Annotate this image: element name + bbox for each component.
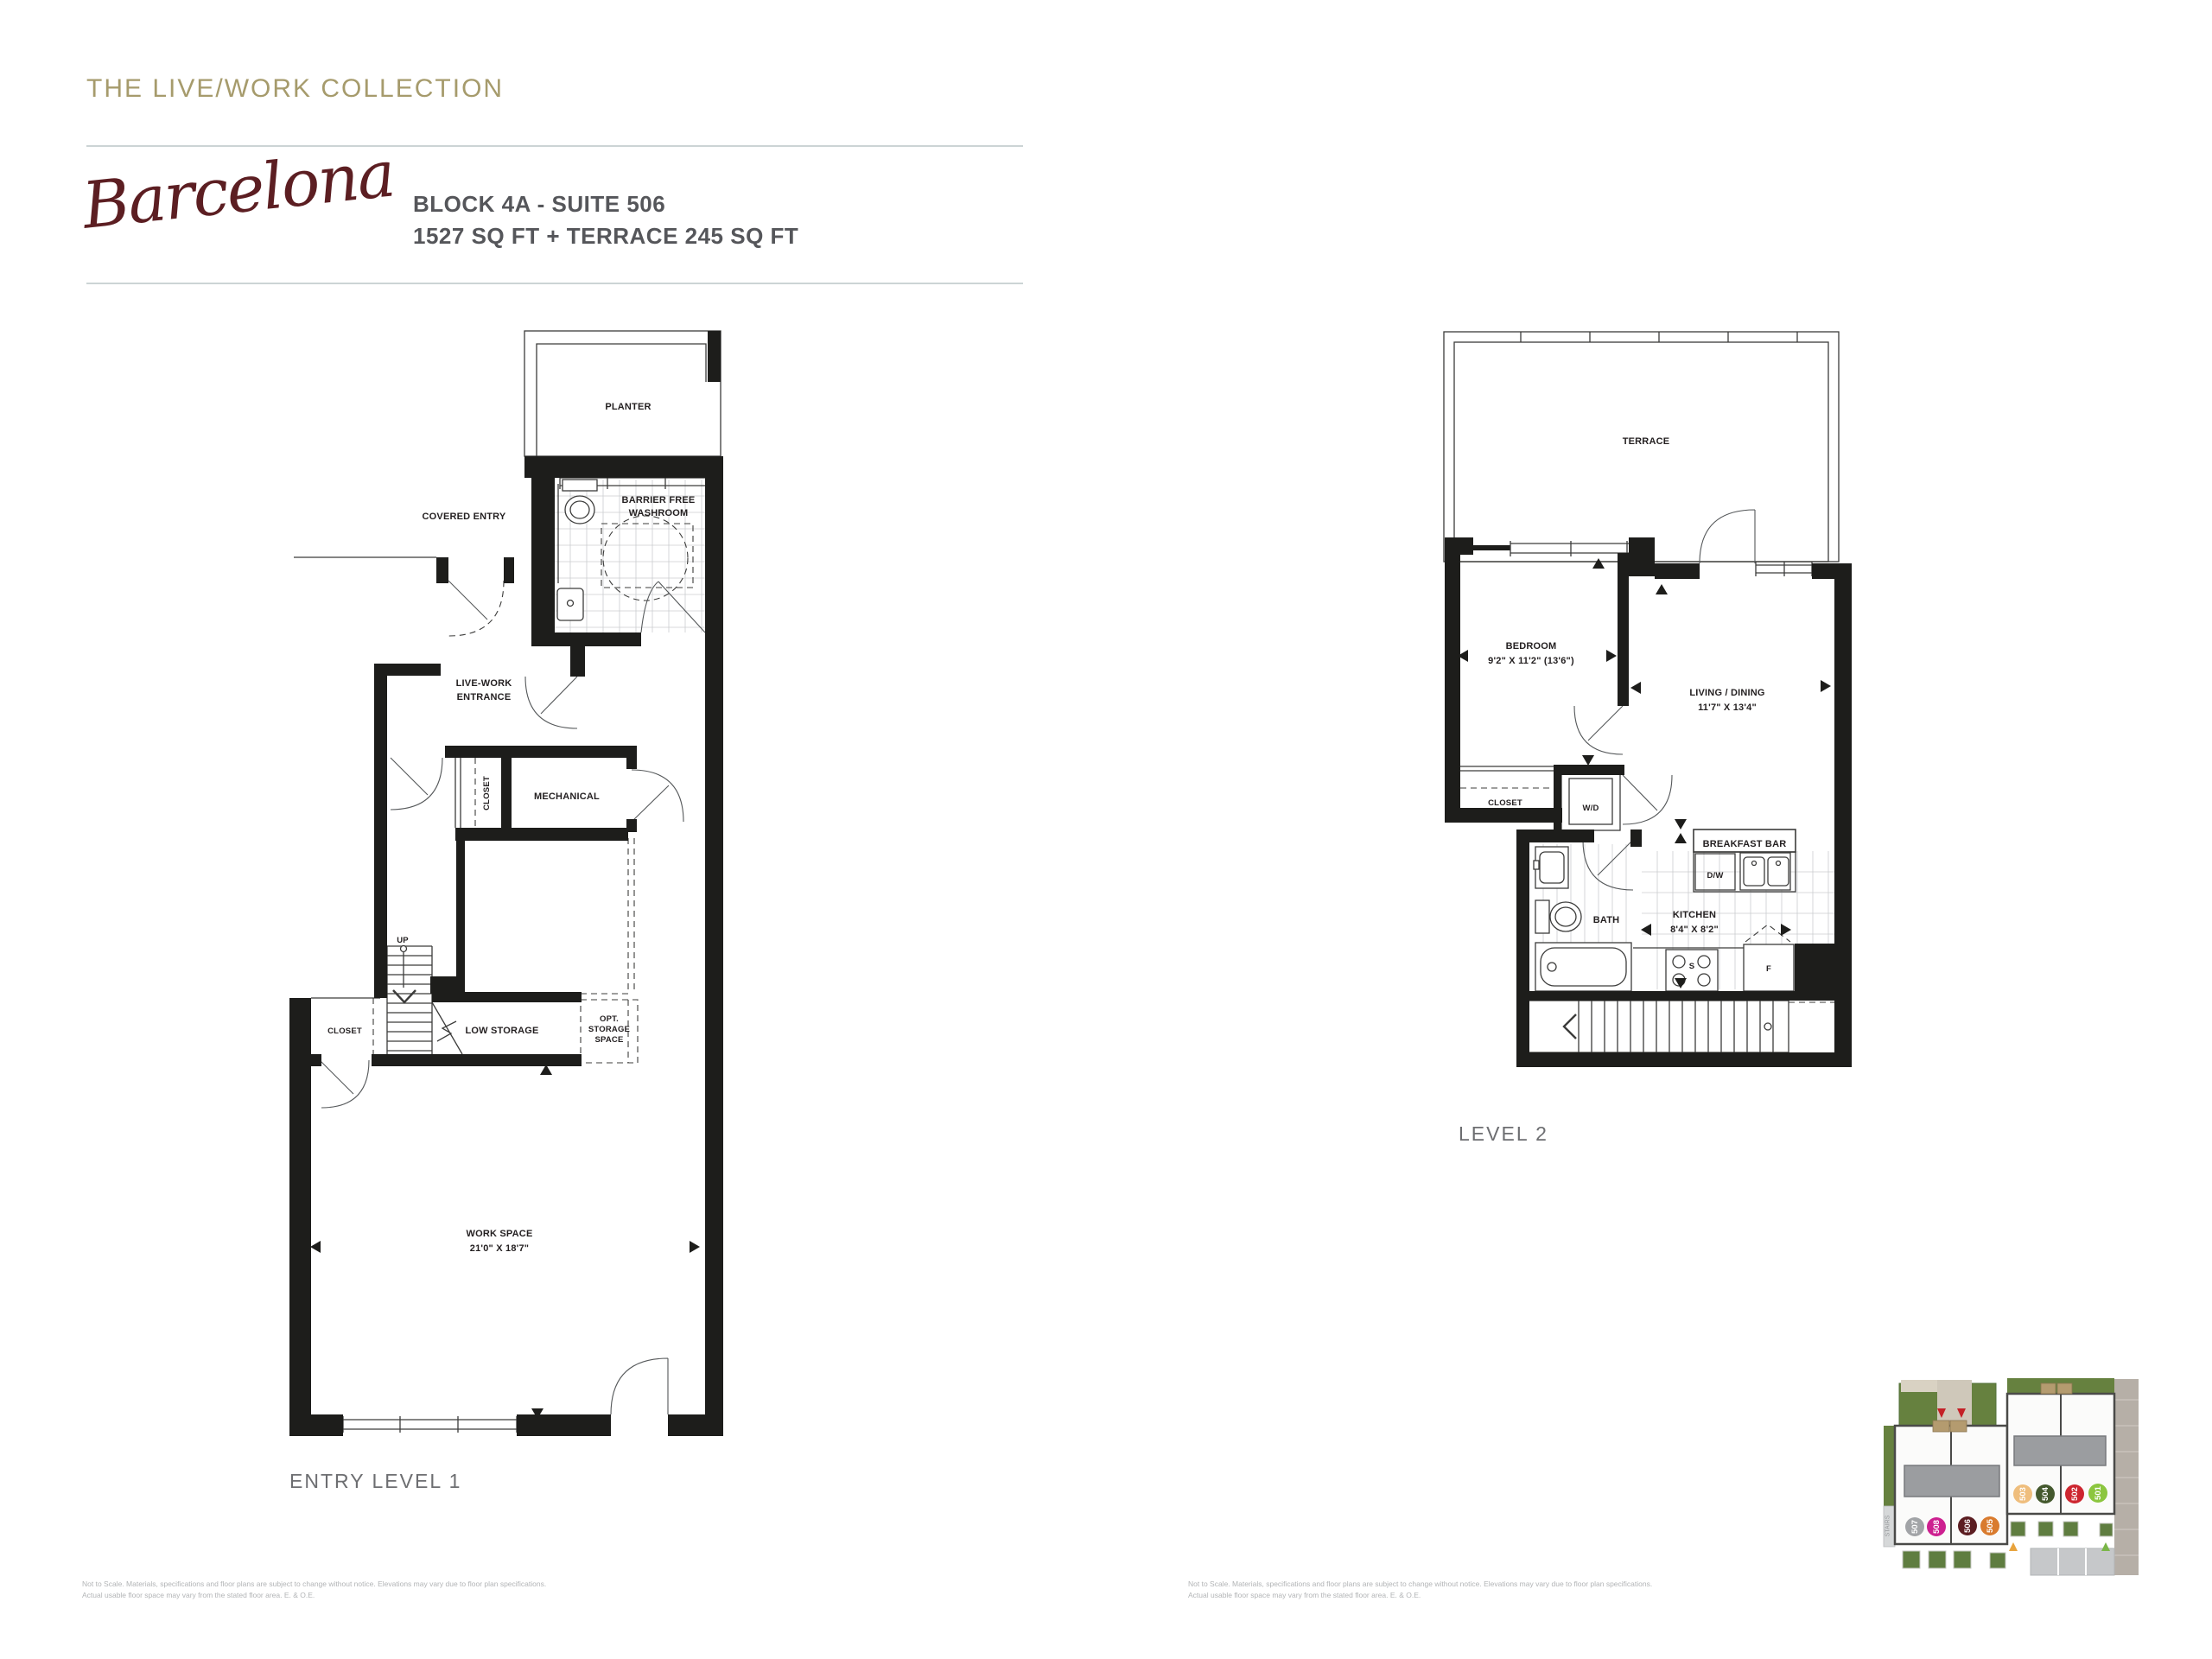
- brochure-page: THE LIVE/WORK COLLECTION Barcelona BLOCK…: [0, 0, 2212, 1659]
- bath-toilet-tank: [1535, 900, 1549, 933]
- kitchen-sink-icon: [1740, 853, 1790, 890]
- bath-label: BATH: [1593, 915, 1620, 925]
- covered-entry-label: COVERED ENTRY: [423, 512, 506, 522]
- disclaimer-line: Not to Scale. Materials, specifications …: [82, 1579, 618, 1590]
- living-dining-label: LIVING / DINING: [1689, 688, 1764, 698]
- washer-dryer-label: W/D: [1582, 804, 1599, 813]
- suite-area-line: 1527 SQ FT + TERRACE 245 SQ FT: [413, 220, 798, 252]
- bath-vanity-icon: [1535, 847, 1568, 888]
- closet-upper-label: CLOSET: [482, 776, 492, 810]
- entry-level-1-caption: ENTRY LEVEL 1: [289, 1470, 461, 1492]
- entry-level-1-floorplan: PLANTER COVERED ENTRY BARRIER FREE WASHR…: [285, 324, 734, 1499]
- fridge-label: F: [1766, 964, 1771, 974]
- unit-number-508: 508: [1932, 1520, 1942, 1534]
- livework-entrance-label-line1: LIVE-WORK: [456, 678, 512, 689]
- unit-number-501: 501: [2094, 1485, 2103, 1500]
- terrace-outline: [1444, 332, 1839, 562]
- bedroom-dim: 9'2" X 11'2" (13'6"): [1488, 656, 1574, 666]
- divider-bottom: [86, 283, 1023, 284]
- toilet-tank: [563, 480, 597, 491]
- divider-top: [86, 145, 1023, 147]
- site-arrow-orange-icon: [2009, 1542, 2018, 1551]
- level-2-caption: LEVEL 2: [1459, 1122, 1548, 1145]
- up-label: UP: [397, 936, 409, 945]
- opt-storage-label-line3: SPACE: [594, 1035, 623, 1045]
- washer-dryer-icon: [1561, 772, 1620, 830]
- planter-label: PLANTER: [605, 402, 651, 412]
- plan1-dimension-arrows: [310, 1065, 700, 1419]
- unit-number-504: 504: [2041, 1486, 2050, 1501]
- mechanical-label: MECHANICAL: [534, 791, 600, 802]
- workspace-dim: 21'0" X 18'7": [470, 1243, 529, 1254]
- level2-dimension-arrows: [1458, 558, 1831, 988]
- kitchen-dim: 8'4" X 8'2": [1670, 925, 1719, 935]
- level2-stairs: [1529, 1001, 1849, 1052]
- kitchen-label: KITCHEN: [1673, 910, 1716, 920]
- workspace-label: WORK SPACE: [467, 1229, 533, 1239]
- disclaimer-right: Not to Scale. Materials, specifications …: [1188, 1579, 1724, 1601]
- unit-number-503: 503: [2018, 1487, 2028, 1501]
- level2-closet-label: CLOSET: [1488, 798, 1522, 808]
- model-name-script: Barcelona: [79, 137, 397, 243]
- bedroom-label: BEDROOM: [1506, 641, 1557, 652]
- site-arrow-green-icon: [2101, 1542, 2110, 1551]
- washroom-label-line1: BARRIER FREE: [622, 495, 696, 505]
- suite-block-line: BLOCK 4A - SUITE 506: [413, 188, 798, 220]
- low-storage-label: LOW STORAGE: [465, 1026, 538, 1036]
- unit-number-505: 505: [1986, 1518, 1995, 1533]
- disclaimer-left: Not to Scale. Materials, specifications …: [82, 1579, 618, 1601]
- unit-number-502: 502: [2070, 1487, 2080, 1501]
- keyplan-stairs-block: STAIRS: [1884, 1506, 1895, 1547]
- breakfast-bar-label: BREAKFAST BAR: [1703, 839, 1787, 849]
- opt-storage-label-line1: OPT.: [600, 1014, 619, 1024]
- washroom-fixtures: [557, 480, 597, 620]
- suite-info: BLOCK 4A - SUITE 506 1527 SQ FT + TERRAC…: [413, 188, 798, 252]
- disclaimer-line: Actual usable floor space may vary from …: [82, 1590, 618, 1601]
- collection-title: THE LIVE/WORK COLLECTION: [86, 74, 504, 104]
- bathtub-icon: [1535, 943, 1631, 991]
- closet-lower-label: CLOSET: [327, 1027, 362, 1036]
- living-dining-dim: 11'7" X 13'4": [1698, 702, 1757, 713]
- keyplan-site-locator: STAIRS 507 508 506 505: [1882, 1376, 2167, 1608]
- disclaimer-line: Not to Scale. Materials, specifications …: [1188, 1579, 1724, 1590]
- washroom-label-line2: WASHROOM: [629, 508, 689, 518]
- opt-storage-label-line2: STORAGE: [588, 1025, 630, 1034]
- terrace-label: TERRACE: [1623, 436, 1670, 447]
- dishwasher-label: D/W: [1707, 871, 1723, 880]
- level-2-floorplan: TERRACE BEDROOM 9'2" X 11'2" (13'6") LIV…: [1434, 324, 1866, 1145]
- stove-label: S: [1689, 962, 1695, 971]
- keyplan-stairs-label: STAIRS: [1885, 1515, 1891, 1536]
- unit-number-506: 506: [1963, 1519, 1973, 1533]
- livework-entrance-label-line2: ENTRANCE: [457, 692, 512, 702]
- unit-number-507: 507: [1910, 1520, 1920, 1534]
- disclaimer-line: Actual usable floor space may vary from …: [1188, 1590, 1724, 1601]
